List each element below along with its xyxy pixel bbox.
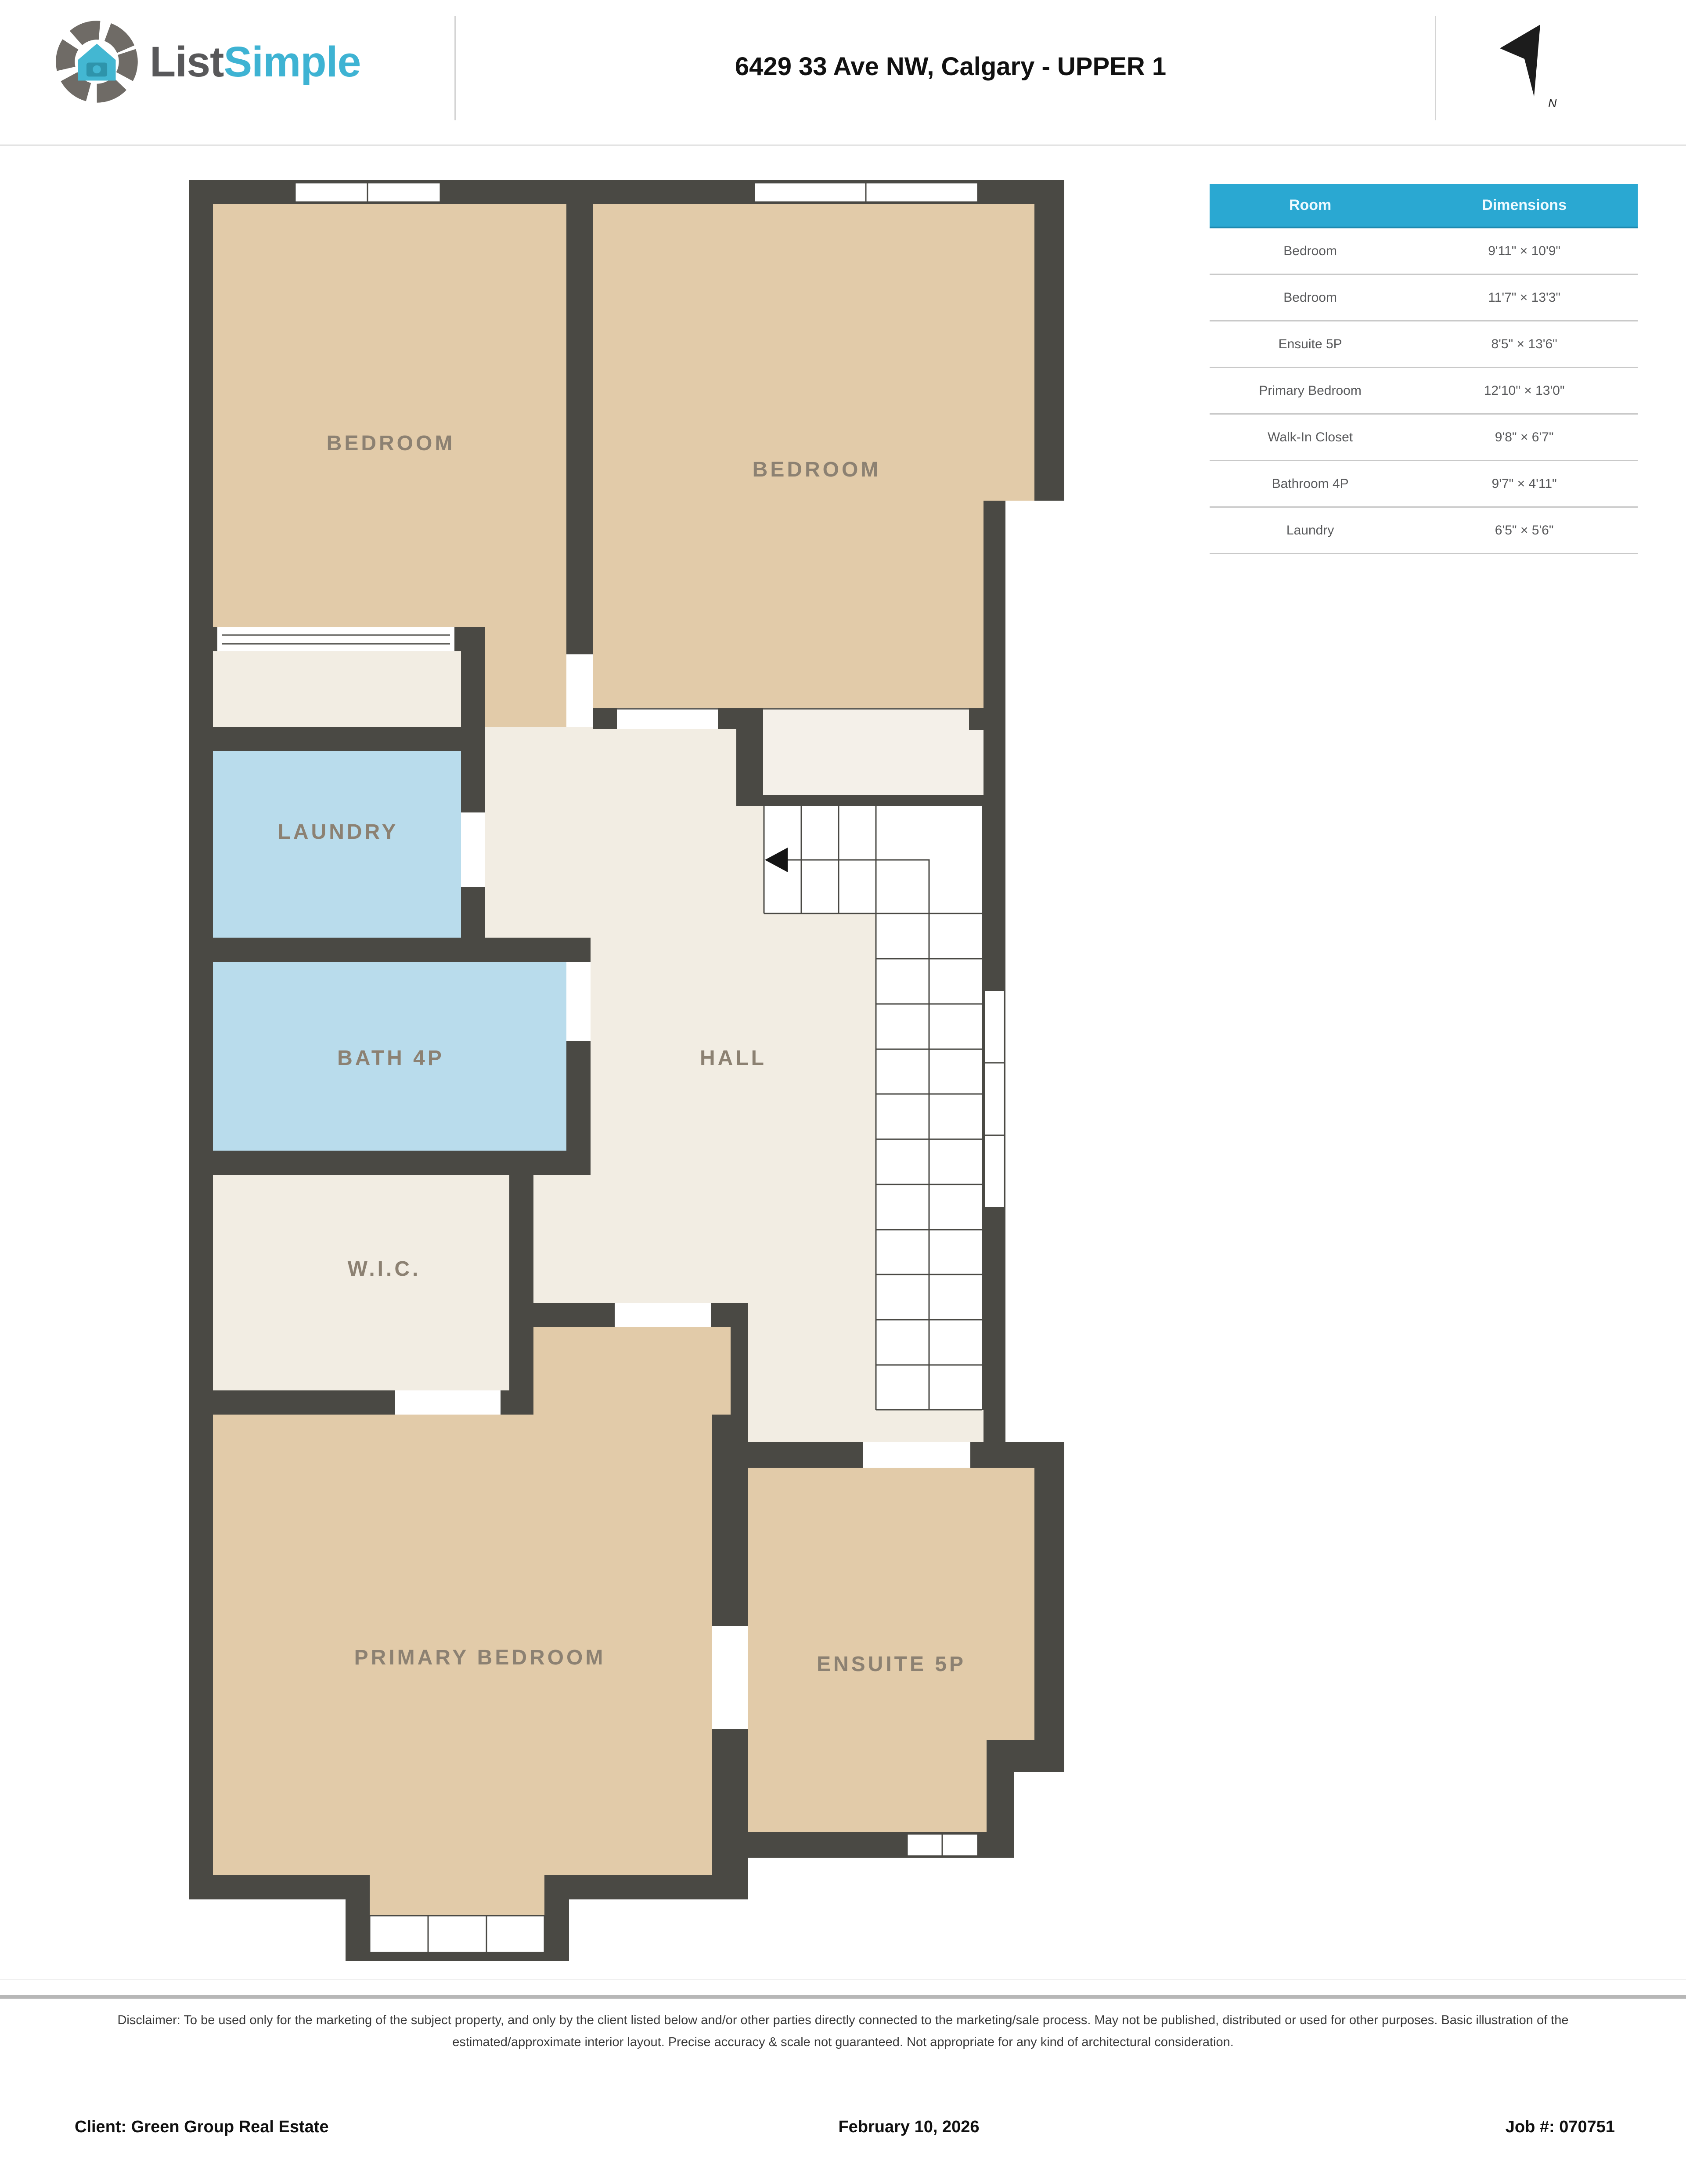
- table-cell-dimensions: 11'7" × 13'3": [1411, 290, 1638, 305]
- footer-rule-light: [0, 1979, 1686, 1980]
- logo-word-list: List: [150, 38, 223, 86]
- laundry-door: [461, 812, 485, 887]
- bedroom-right-door: [617, 708, 718, 729]
- label-primary: PRIMARY BEDROOM: [354, 1646, 606, 1669]
- north-arrow-icon: [1496, 21, 1562, 109]
- closet-right-wall-tick: [969, 708, 983, 730]
- disclaimer-text: Disclaimer: To be used only for the mark…: [99, 2010, 1587, 2054]
- table-cell-room: Ensuite 5P: [1210, 337, 1411, 352]
- closet-left-opening: [217, 627, 454, 651]
- logo-word-simple: Simple: [223, 38, 360, 86]
- footer-client: Client: Green Group Real Estate: [75, 2118, 329, 2137]
- table-cell-room: Bathroom 4P: [1210, 477, 1411, 491]
- table-cell-room: Bedroom: [1210, 290, 1411, 305]
- floorplan-page: ListSimple 6429 33 Ave NW, Calgary - UPP…: [0, 0, 1686, 2184]
- label-hall: HALL: [700, 1047, 767, 1070]
- label-wic: W.I.C.: [348, 1257, 421, 1281]
- table-cell-room: Primary Bedroom: [1210, 383, 1411, 398]
- footer-job-number: Job #: 070751: [1506, 2118, 1615, 2137]
- footer-date: February 10, 2026: [838, 2118, 979, 2137]
- north-arrow: N: [1496, 21, 1575, 122]
- north-arrow-label: N: [1548, 97, 1557, 110]
- header-divider-left: [454, 16, 456, 120]
- label-bedroom-left: BEDROOM: [327, 432, 455, 455]
- wic-door: [395, 1390, 501, 1415]
- floor-plan: BEDROOM BEDROOM LAUNDRY BATH 4P HALL W.I…: [189, 180, 1076, 1963]
- room-closet-right: [763, 708, 983, 795]
- bedroom-left-door: [566, 654, 593, 727]
- room-primary-entry: [533, 1327, 731, 1415]
- floor-plan-svg: BEDROOM BEDROOM LAUNDRY BATH 4P HALL W.I…: [189, 180, 1076, 1963]
- ensuite-door: [863, 1442, 970, 1468]
- listsimple-logo: ListSimple: [52, 17, 361, 107]
- table-cell-dimensions: 9'11" × 10'9": [1411, 244, 1638, 259]
- table-cell-dimensions: 12'10" × 13'0": [1411, 383, 1638, 398]
- label-laundry: LAUNDRY: [278, 820, 399, 844]
- room-laundry: [213, 751, 461, 938]
- table-header: Room Dimensions: [1210, 184, 1638, 228]
- table-cell-room: Laundry: [1210, 523, 1411, 538]
- table-header-room: Room: [1210, 197, 1411, 214]
- primary-entry-door: [615, 1303, 711, 1327]
- room-dimensions-table: Room Dimensions Bedroom 9'11" × 10'9" Be…: [1210, 184, 1638, 554]
- label-ensuite: ENSUITE 5P: [817, 1653, 966, 1676]
- table-row: Laundry 6'5" × 5'6": [1210, 508, 1638, 554]
- label-bath: BATH 4P: [337, 1047, 444, 1070]
- header-divider-right: [1435, 16, 1436, 120]
- table-row: Bedroom 11'7" × 13'3": [1210, 275, 1638, 321]
- window-stairwell: [984, 990, 1005, 1208]
- listsimple-logo-text: ListSimple: [150, 37, 361, 87]
- table-row: Bathroom 4P 9'7" × 4'11": [1210, 461, 1638, 508]
- table-cell-dimensions: 8'5" × 13'6": [1411, 337, 1638, 352]
- footer-rule: [0, 1995, 1686, 1999]
- table-cell-room: Walk-In Closet: [1210, 430, 1411, 445]
- table-cell-dimensions: 9'7" × 4'11": [1411, 477, 1638, 491]
- window-bay: [370, 1916, 544, 1953]
- table-row: Primary Bedroom 12'10" × 13'0": [1210, 368, 1638, 415]
- listsimple-logo-icon: [52, 17, 142, 107]
- room-primary-bedroom: [213, 1415, 712, 1932]
- table-cell-dimensions: 6'5" × 5'6": [1411, 523, 1638, 538]
- header-rule: [0, 144, 1686, 146]
- room-wic: [213, 1175, 509, 1390]
- room-closet-left: [213, 651, 461, 727]
- table-cell-dimensions: 9'8" × 6'7": [1411, 430, 1638, 445]
- table-row: Ensuite 5P 8'5" × 13'6": [1210, 321, 1638, 368]
- bath-door: [566, 962, 591, 1041]
- table-row: Walk-In Closet 9'8" × 6'7": [1210, 415, 1638, 461]
- primary-ensuite-door: [712, 1626, 748, 1729]
- table-header-dimensions: Dimensions: [1411, 197, 1638, 214]
- table-row: Bedroom 9'11" × 10'9": [1210, 228, 1638, 275]
- room-bedroom-right: [593, 204, 1034, 708]
- label-bedroom-right: BEDROOM: [753, 458, 881, 481]
- page-title: 6429 33 Ave NW, Calgary - UPPER 1: [735, 52, 1166, 81]
- table-cell-room: Bedroom: [1210, 244, 1411, 259]
